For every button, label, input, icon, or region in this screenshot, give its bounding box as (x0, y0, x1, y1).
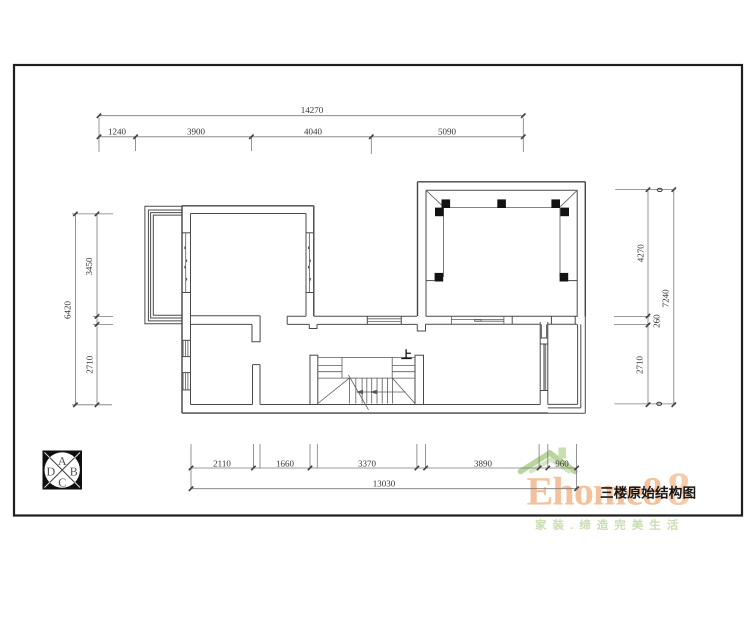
svg-text:D: D (46, 464, 55, 478)
svg-text:5090: 5090 (438, 126, 457, 136)
svg-text:2710: 2710 (634, 356, 644, 375)
svg-text:C: C (58, 475, 66, 489)
svg-text:1240: 1240 (108, 126, 127, 136)
svg-text:13030: 13030 (373, 479, 396, 489)
svg-text:3900: 3900 (187, 126, 206, 136)
svg-text:三楼原始结构图: 三楼原始结构图 (600, 486, 696, 501)
svg-text:2110: 2110 (213, 458, 231, 468)
svg-text:3370: 3370 (358, 458, 377, 468)
svg-text:4270: 4270 (636, 244, 646, 262)
svg-text:B: B (70, 464, 78, 478)
svg-text:2710: 2710 (85, 355, 95, 374)
svg-text:1660: 1660 (276, 458, 295, 468)
svg-text:4040: 4040 (304, 126, 323, 136)
svg-text:A: A (58, 454, 67, 468)
svg-text:6420: 6420 (63, 301, 73, 320)
svg-text:260: 260 (652, 314, 662, 328)
svg-text:3450: 3450 (84, 257, 94, 276)
svg-text:上: 上 (401, 349, 412, 362)
svg-text:3890: 3890 (474, 458, 493, 468)
svg-text:14270: 14270 (301, 105, 324, 115)
svg-text:家装.缔造完美生活: 家装.缔造完美生活 (535, 518, 684, 532)
svg-text:7240: 7240 (660, 289, 670, 308)
svg-text:960: 960 (555, 458, 569, 468)
